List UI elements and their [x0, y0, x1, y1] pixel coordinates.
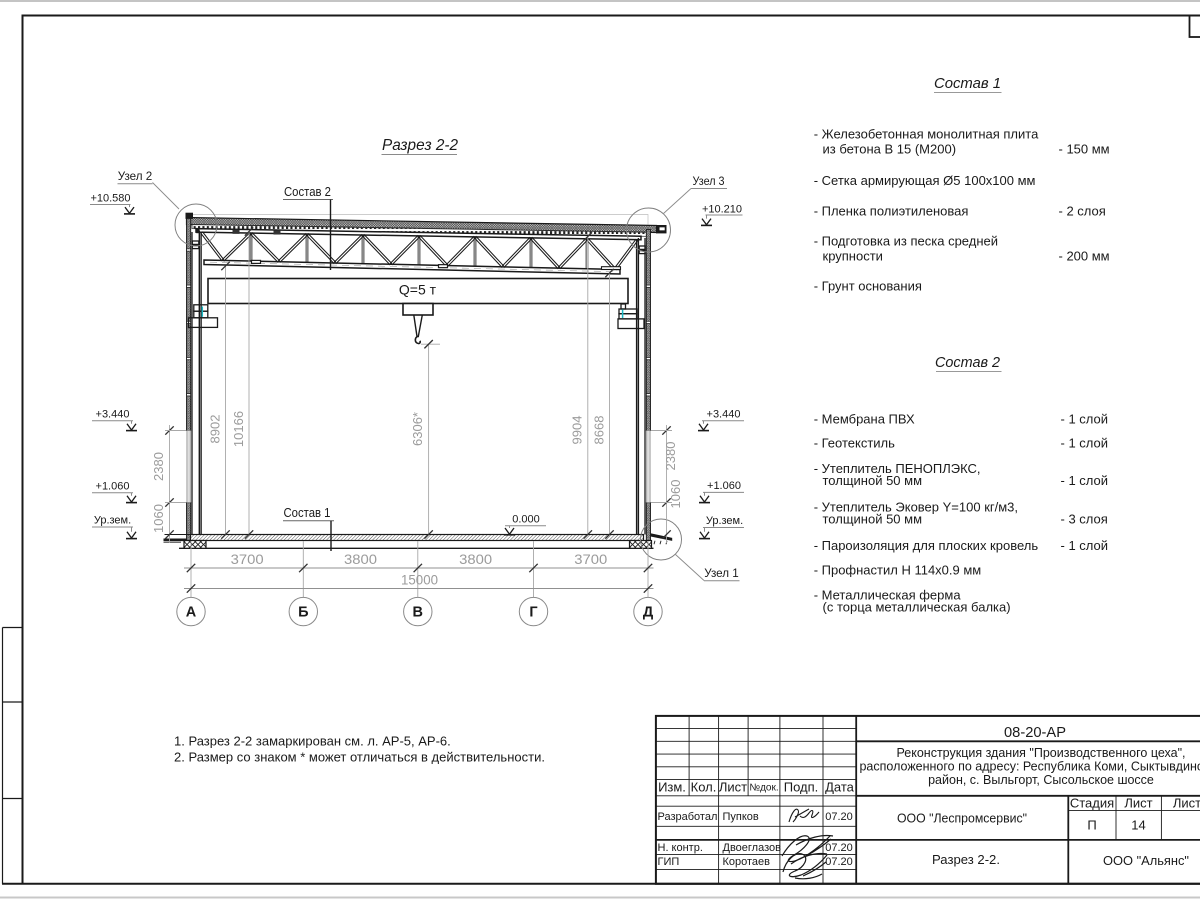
svg-text:П: П	[1087, 818, 1096, 833]
svg-text:Коротаев: Коротаев	[723, 856, 771, 868]
svg-text:08-20-АР: 08-20-АР	[1004, 725, 1066, 741]
svg-text:+10.580: +10.580	[90, 193, 130, 205]
svg-text:8668: 8668	[592, 416, 607, 445]
svg-text:10166: 10166	[231, 411, 246, 447]
svg-text:2380: 2380	[663, 442, 678, 471]
svg-text:Реконструкция здания "Производ: Реконструкция здания "Производственного …	[897, 746, 1186, 760]
svg-text:- 1 слой: - 1 слой	[1061, 473, 1109, 488]
svg-text:№док.: №док.	[749, 783, 778, 794]
svg-text:+10.210: +10.210	[702, 204, 742, 216]
svg-text:расположенного по адресу: Респ: расположенного по адресу: Республика Ком…	[859, 760, 1200, 774]
svg-text:Кол.: Кол.	[691, 780, 717, 795]
svg-text:- 1 слой: - 1 слой	[1061, 538, 1109, 553]
svg-text:ГИП: ГИП	[658, 856, 680, 868]
svg-text:А: А	[186, 605, 197, 621]
svg-text:ООО "Леспромсервис": ООО "Леспромсервис"	[897, 812, 1027, 826]
svg-text:+3.440: +3.440	[96, 409, 130, 421]
svg-text:Узел 2: Узел 2	[118, 171, 153, 183]
svg-text:- 150 мм: - 150 мм	[1059, 142, 1110, 157]
svg-text:Двоеглазов: Двоеглазов	[723, 842, 782, 854]
svg-text:- Железобетонная монолитная п: - Железобетонная монолитная плита	[814, 127, 1039, 142]
svg-text:Узел 3: Узел 3	[693, 176, 725, 188]
svg-text:крупности: крупности	[823, 249, 883, 264]
svg-text:- Сетка армирующая Ø5 100х100: - Сетка армирующая Ø5 100х100 мм	[814, 173, 1036, 188]
svg-text:- Профнастил Н 114х0.9 мм: - Профнастил Н 114х0.9 мм	[814, 563, 982, 578]
svg-text:В: В	[413, 605, 423, 621]
svg-text:Н. контр.: Н. контр.	[658, 842, 703, 854]
svg-text:толщиной 50 мм: толщиной 50 мм	[823, 473, 923, 488]
svg-text:+1.060: +1.060	[707, 480, 741, 492]
svg-text:толщиной 50 мм: толщиной 50 мм	[823, 512, 923, 527]
svg-text:Состав 2: Состав 2	[284, 185, 331, 199]
svg-text:- Подготовка из песка средней: - Подготовка из песка средней	[814, 234, 998, 249]
svg-text:3800: 3800	[344, 552, 377, 567]
svg-text:- 200 мм: - 200 мм	[1059, 249, 1110, 264]
svg-text:- Пароизоляция для плоских кро: - Пароизоляция для плоских кровель	[814, 538, 1039, 553]
svg-text:3700: 3700	[574, 552, 607, 567]
svg-text:Состав 2: Состав 2	[935, 354, 1001, 371]
svg-text:8902: 8902	[208, 415, 223, 444]
svg-text:Разработал: Разработал	[658, 811, 718, 823]
svg-text:3700: 3700	[231, 552, 264, 567]
svg-text:- 2 слоя: - 2 слоя	[1059, 204, 1106, 219]
svg-text:07.20: 07.20	[825, 856, 853, 868]
svg-text:Q=5 т: Q=5 т	[399, 282, 437, 298]
svg-text:Подп.: Подп.	[784, 780, 819, 795]
svg-text:- Геотекстиль: - Геотекстиль	[814, 436, 895, 451]
svg-text:1060: 1060	[668, 480, 683, 509]
svg-text:из бетона В 15 (М200): из бетона В 15 (М200)	[823, 142, 957, 157]
svg-text:- 1 слой: - 1 слой	[1061, 412, 1109, 427]
svg-text:07.20: 07.20	[825, 811, 853, 823]
svg-text:(с торца металлическая балка): (с торца металлическая балка)	[823, 600, 1011, 615]
svg-text:Состав 1: Состав 1	[934, 75, 1001, 92]
svg-text:14: 14	[1131, 818, 1145, 833]
svg-text:2. Размер со знаком * может от: 2. Размер со знаком * может отличаться в…	[174, 750, 545, 765]
svg-text:- Пленка полиэтиленовая: - Пленка полиэтиленовая	[814, 204, 969, 219]
svg-text:Ур.зем.: Ур.зем.	[706, 515, 743, 527]
svg-text:- 3 слоя: - 3 слоя	[1061, 512, 1108, 527]
svg-text:1. Разрез 2-2 замаркирован см.: 1. Разрез 2-2 замаркирован см. л. АР-5, …	[174, 734, 451, 749]
svg-text:15000: 15000	[401, 573, 438, 588]
svg-text:- 1 слой: - 1 слой	[1061, 436, 1109, 451]
svg-text:Разрез 2-2.: Разрез 2-2.	[932, 852, 1000, 867]
svg-text:- Грунт основания: - Грунт основания	[814, 279, 922, 294]
svg-text:0.000: 0.000	[512, 514, 540, 526]
svg-text:ООО "Альянс": ООО "Альянс"	[1103, 853, 1189, 868]
svg-text:- Мембрана ПВХ: - Мембрана ПВХ	[814, 412, 915, 427]
svg-text:6306*: 6306*	[410, 412, 425, 446]
svg-text:Изм.: Изм.	[658, 780, 686, 795]
svg-text:Дата: Дата	[825, 780, 855, 795]
svg-text:Разрез 2-2: Разрез 2-2	[382, 137, 458, 154]
svg-text:Б: Б	[298, 605, 308, 621]
svg-text:Пупков: Пупков	[723, 811, 759, 823]
svg-text:+1.060: +1.060	[96, 481, 130, 493]
svg-text:Листов: Листов	[1173, 796, 1200, 811]
svg-text:Г: Г	[529, 605, 537, 621]
svg-text:Стадия: Стадия	[1070, 796, 1114, 811]
svg-text:07.20: 07.20	[825, 842, 853, 854]
svg-text:3800: 3800	[459, 552, 492, 567]
svg-text:9904: 9904	[570, 416, 585, 445]
svg-text:Узел 1: Узел 1	[704, 568, 739, 580]
svg-text:Д: Д	[643, 605, 654, 621]
svg-text:2380: 2380	[151, 452, 166, 481]
svg-text:Состав 1: Состав 1	[284, 506, 331, 520]
svg-text:Ур.зем.: Ур.зем.	[94, 515, 131, 527]
svg-text:+3.440: +3.440	[707, 409, 741, 421]
svg-text:1060: 1060	[151, 504, 166, 533]
svg-text:Лист: Лист	[719, 780, 747, 795]
svg-text:район, с. Выльгорт, Сысольское: район, с. Выльгорт, Сысольское шоссе	[928, 773, 1154, 787]
svg-text:Лист: Лист	[1124, 796, 1152, 811]
